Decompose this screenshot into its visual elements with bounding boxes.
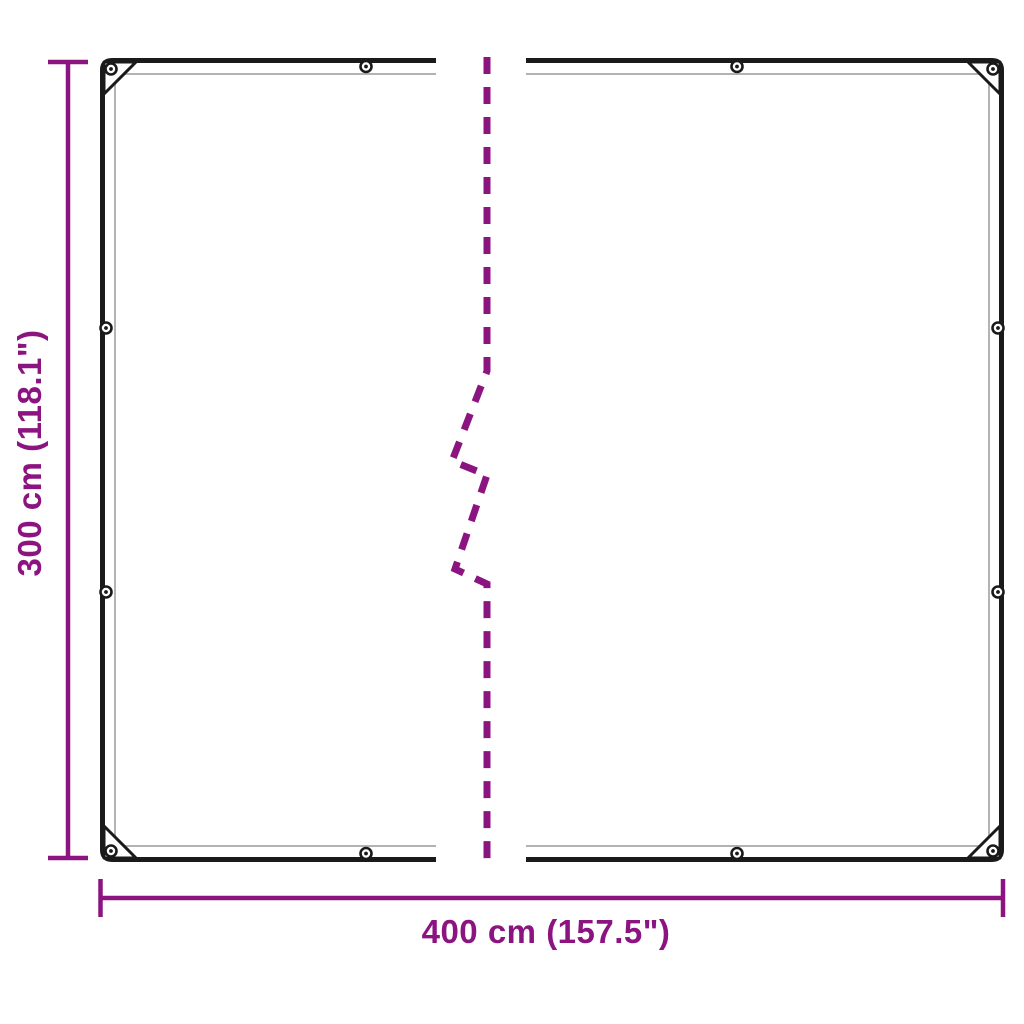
tarp-outline: [526, 61, 1002, 860]
grommet-icon: [361, 61, 372, 72]
grommet-icon: [988, 846, 999, 857]
tarp-left-panel: [101, 61, 437, 860]
tarp-outline: [103, 61, 437, 860]
tarp-seam-line: [526, 74, 989, 846]
height-dimension-label: 300 cm (118.1"): [12, 330, 48, 577]
width-dimension-label: 400 cm (157.5"): [422, 914, 671, 950]
grommet-icon: [988, 64, 999, 75]
break-line: [452, 57, 487, 863]
grommet-icon: [106, 64, 117, 75]
grommet-icon: [361, 848, 372, 859]
tarp-right-panel: [526, 61, 1004, 860]
grommet-icon: [993, 323, 1004, 334]
tarpaulin-drawing: [0, 0, 1024, 1024]
grommet-icon: [993, 587, 1004, 598]
product-dimension-diagram: 300 cm (118.1") 400 cm (157.5"): [0, 0, 1024, 1024]
height-dimension-line: [48, 62, 88, 858]
grommet-icon: [101, 587, 112, 598]
tarp-seam-line: [115, 74, 436, 846]
grommet-icon: [732, 61, 743, 72]
grommet-icon: [732, 848, 743, 859]
grommet-icon: [106, 846, 117, 857]
grommet-icon: [101, 323, 112, 334]
width-dimension-line: [101, 879, 1004, 917]
